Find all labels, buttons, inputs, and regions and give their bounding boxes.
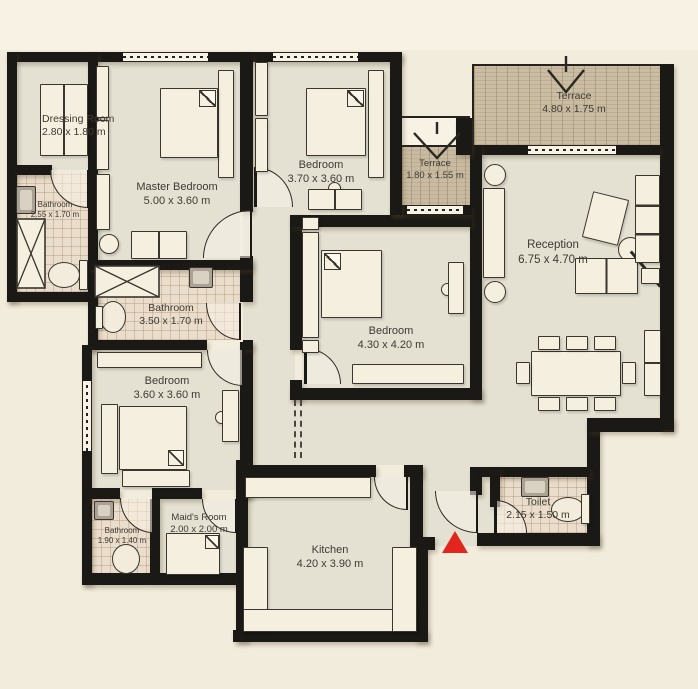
room-size: 3.50 x 1.70 m xyxy=(108,315,234,328)
room-name: Bedroom xyxy=(251,158,391,172)
room-label-dressing-room: Dressing Room 2.80 x 1.80 m xyxy=(42,113,116,140)
hall-threshold-dashes xyxy=(294,400,296,458)
wall xyxy=(290,215,302,350)
chaise-sofa xyxy=(635,175,660,263)
bench-seat xyxy=(131,231,187,259)
room-label-bathroom-small: Bathroom 1.90 x 1.40 m xyxy=(88,526,156,545)
door-master-bedroom xyxy=(203,210,251,258)
dining-chair xyxy=(594,336,616,350)
room-size: 2.00 x 2.00 m xyxy=(156,524,242,536)
dining-chair xyxy=(622,362,636,384)
bed-pillow xyxy=(199,90,216,107)
sink xyxy=(189,267,213,288)
room-size: 5.00 x 3.60 m xyxy=(106,194,248,208)
kitchen-counter xyxy=(245,477,371,498)
wall xyxy=(470,145,482,400)
bed-pillow xyxy=(347,90,364,107)
toilet-tank xyxy=(95,306,103,329)
background-band xyxy=(0,0,698,50)
room-size: 3.70 x 3.60 m xyxy=(251,172,391,186)
bench-seat xyxy=(122,470,190,487)
dining-chair xyxy=(516,362,530,384)
hall-threshold-dashes xyxy=(300,400,302,458)
room-size: 2.80 x 1.80 m xyxy=(42,126,116,139)
dining-chair xyxy=(594,397,616,411)
room-size: 4.20 x 3.90 m xyxy=(250,557,410,571)
room-size: 6.75 x 4.70 m xyxy=(483,253,623,268)
room-size: 4.30 x 4.20 m xyxy=(321,338,461,352)
wall xyxy=(88,488,120,499)
nightstand xyxy=(302,217,319,230)
window xyxy=(273,52,358,62)
bed-headboard xyxy=(218,70,234,178)
room-name: Bathroom xyxy=(108,302,234,315)
wall xyxy=(290,388,482,400)
wardrobe xyxy=(255,62,268,116)
room-name: Bathroom xyxy=(88,526,156,536)
room-size: 1.80 x 1.55 m xyxy=(398,170,472,182)
window xyxy=(123,52,208,62)
dining-chair xyxy=(566,336,588,350)
door-kitchen xyxy=(374,477,407,510)
room-label-bedroom-top: Bedroom 3.70 x 3.60 m xyxy=(251,158,391,186)
wall xyxy=(82,573,247,585)
room-name: Terrace xyxy=(508,90,640,103)
door-entrance xyxy=(435,491,477,533)
bed-headboard xyxy=(302,232,319,338)
side-table xyxy=(484,281,506,303)
room-label-master-bedroom: Master Bedroom 5.00 x 3.60 m xyxy=(106,180,248,208)
ottoman xyxy=(641,268,660,284)
sofa xyxy=(644,330,661,396)
room-name: Terrace xyxy=(398,158,472,170)
window xyxy=(82,381,92,451)
wall xyxy=(243,465,376,477)
dining-chair xyxy=(538,336,560,350)
room-name: Toilet xyxy=(492,496,584,509)
room-size: 3.60 x 3.60 m xyxy=(95,388,239,402)
room-size: 2.55 x 1.70 m xyxy=(18,210,92,220)
room-label-bedroom-middle: Bedroom 4.30 x 4.20 m xyxy=(321,324,461,352)
room-label-kitchen: Kitchen 4.20 x 3.90 m xyxy=(250,543,410,571)
wardrobe xyxy=(96,66,109,118)
wall xyxy=(88,340,207,350)
door-bedroom-middle xyxy=(305,348,341,384)
room-label-terrace-small: Terrace 1.80 x 1.55 m xyxy=(398,158,472,182)
wall xyxy=(390,52,402,215)
wall xyxy=(660,64,674,430)
bathtub xyxy=(94,265,160,298)
room-name: Reception xyxy=(483,238,623,253)
room-name: Maid's Room xyxy=(156,512,242,524)
terrace-direction-arrow xyxy=(406,120,464,160)
room-size: 1.90 x 1.40 m xyxy=(88,536,156,546)
toilet-fixture xyxy=(48,262,80,288)
bench-seat xyxy=(352,364,464,384)
kitchen-counter xyxy=(243,609,417,632)
room-name: Bedroom xyxy=(321,324,461,338)
wall xyxy=(587,418,600,546)
toilet-tank xyxy=(79,260,88,290)
room-name: Bathroom xyxy=(18,200,92,210)
shelf xyxy=(97,352,202,368)
nightstand xyxy=(302,340,319,353)
window xyxy=(407,205,463,215)
cabinet xyxy=(308,189,362,210)
window xyxy=(528,145,616,155)
toilet-fixture xyxy=(112,544,140,574)
room-label-bedroom-lower: Bedroom 3.60 x 3.60 m xyxy=(95,374,239,402)
bed-pillow xyxy=(205,535,219,549)
side-table xyxy=(484,164,506,186)
room-label-toilet: Toilet 2.15 x 1.50 m xyxy=(492,496,584,523)
entrance-arrow xyxy=(442,531,468,553)
room-name: Dressing Room xyxy=(42,113,116,126)
shower xyxy=(16,218,46,289)
room-label-bathroom-ensuite: Bathroom 2.55 x 1.70 m xyxy=(18,200,92,219)
bed-pillow xyxy=(324,253,341,270)
room-size: 4.80 x 1.75 m xyxy=(508,103,640,116)
room-label-reception: Reception 6.75 x 4.70 m xyxy=(483,238,623,267)
room-name: Master Bedroom xyxy=(106,180,248,194)
desk xyxy=(448,262,464,314)
room-label-terrace-large: Terrace 4.80 x 1.75 m xyxy=(508,90,640,117)
wall xyxy=(152,488,202,499)
bed-headboard xyxy=(101,404,118,474)
sink xyxy=(521,477,549,497)
wall xyxy=(243,340,253,350)
stool xyxy=(99,234,119,254)
dining-chair xyxy=(566,397,588,411)
room-label-maids-room: Maid's Room 2.00 x 2.00 m xyxy=(156,512,242,536)
wall xyxy=(477,533,600,546)
bed-pillow xyxy=(168,450,184,466)
wall xyxy=(15,165,52,175)
room-name: Bedroom xyxy=(95,374,239,388)
room-name: Kitchen xyxy=(250,543,410,557)
dining-table xyxy=(531,351,621,396)
room-size: 2.15 x 1.50 m xyxy=(492,509,584,522)
dining-chair xyxy=(538,397,560,411)
room-label-bathroom-main: Bathroom 3.50 x 1.70 m xyxy=(108,302,234,329)
sink xyxy=(94,501,114,520)
wall xyxy=(7,292,97,302)
floor-plan: Dressing Room 2.80 x 1.80 m Bathroom 2.5… xyxy=(0,0,698,689)
